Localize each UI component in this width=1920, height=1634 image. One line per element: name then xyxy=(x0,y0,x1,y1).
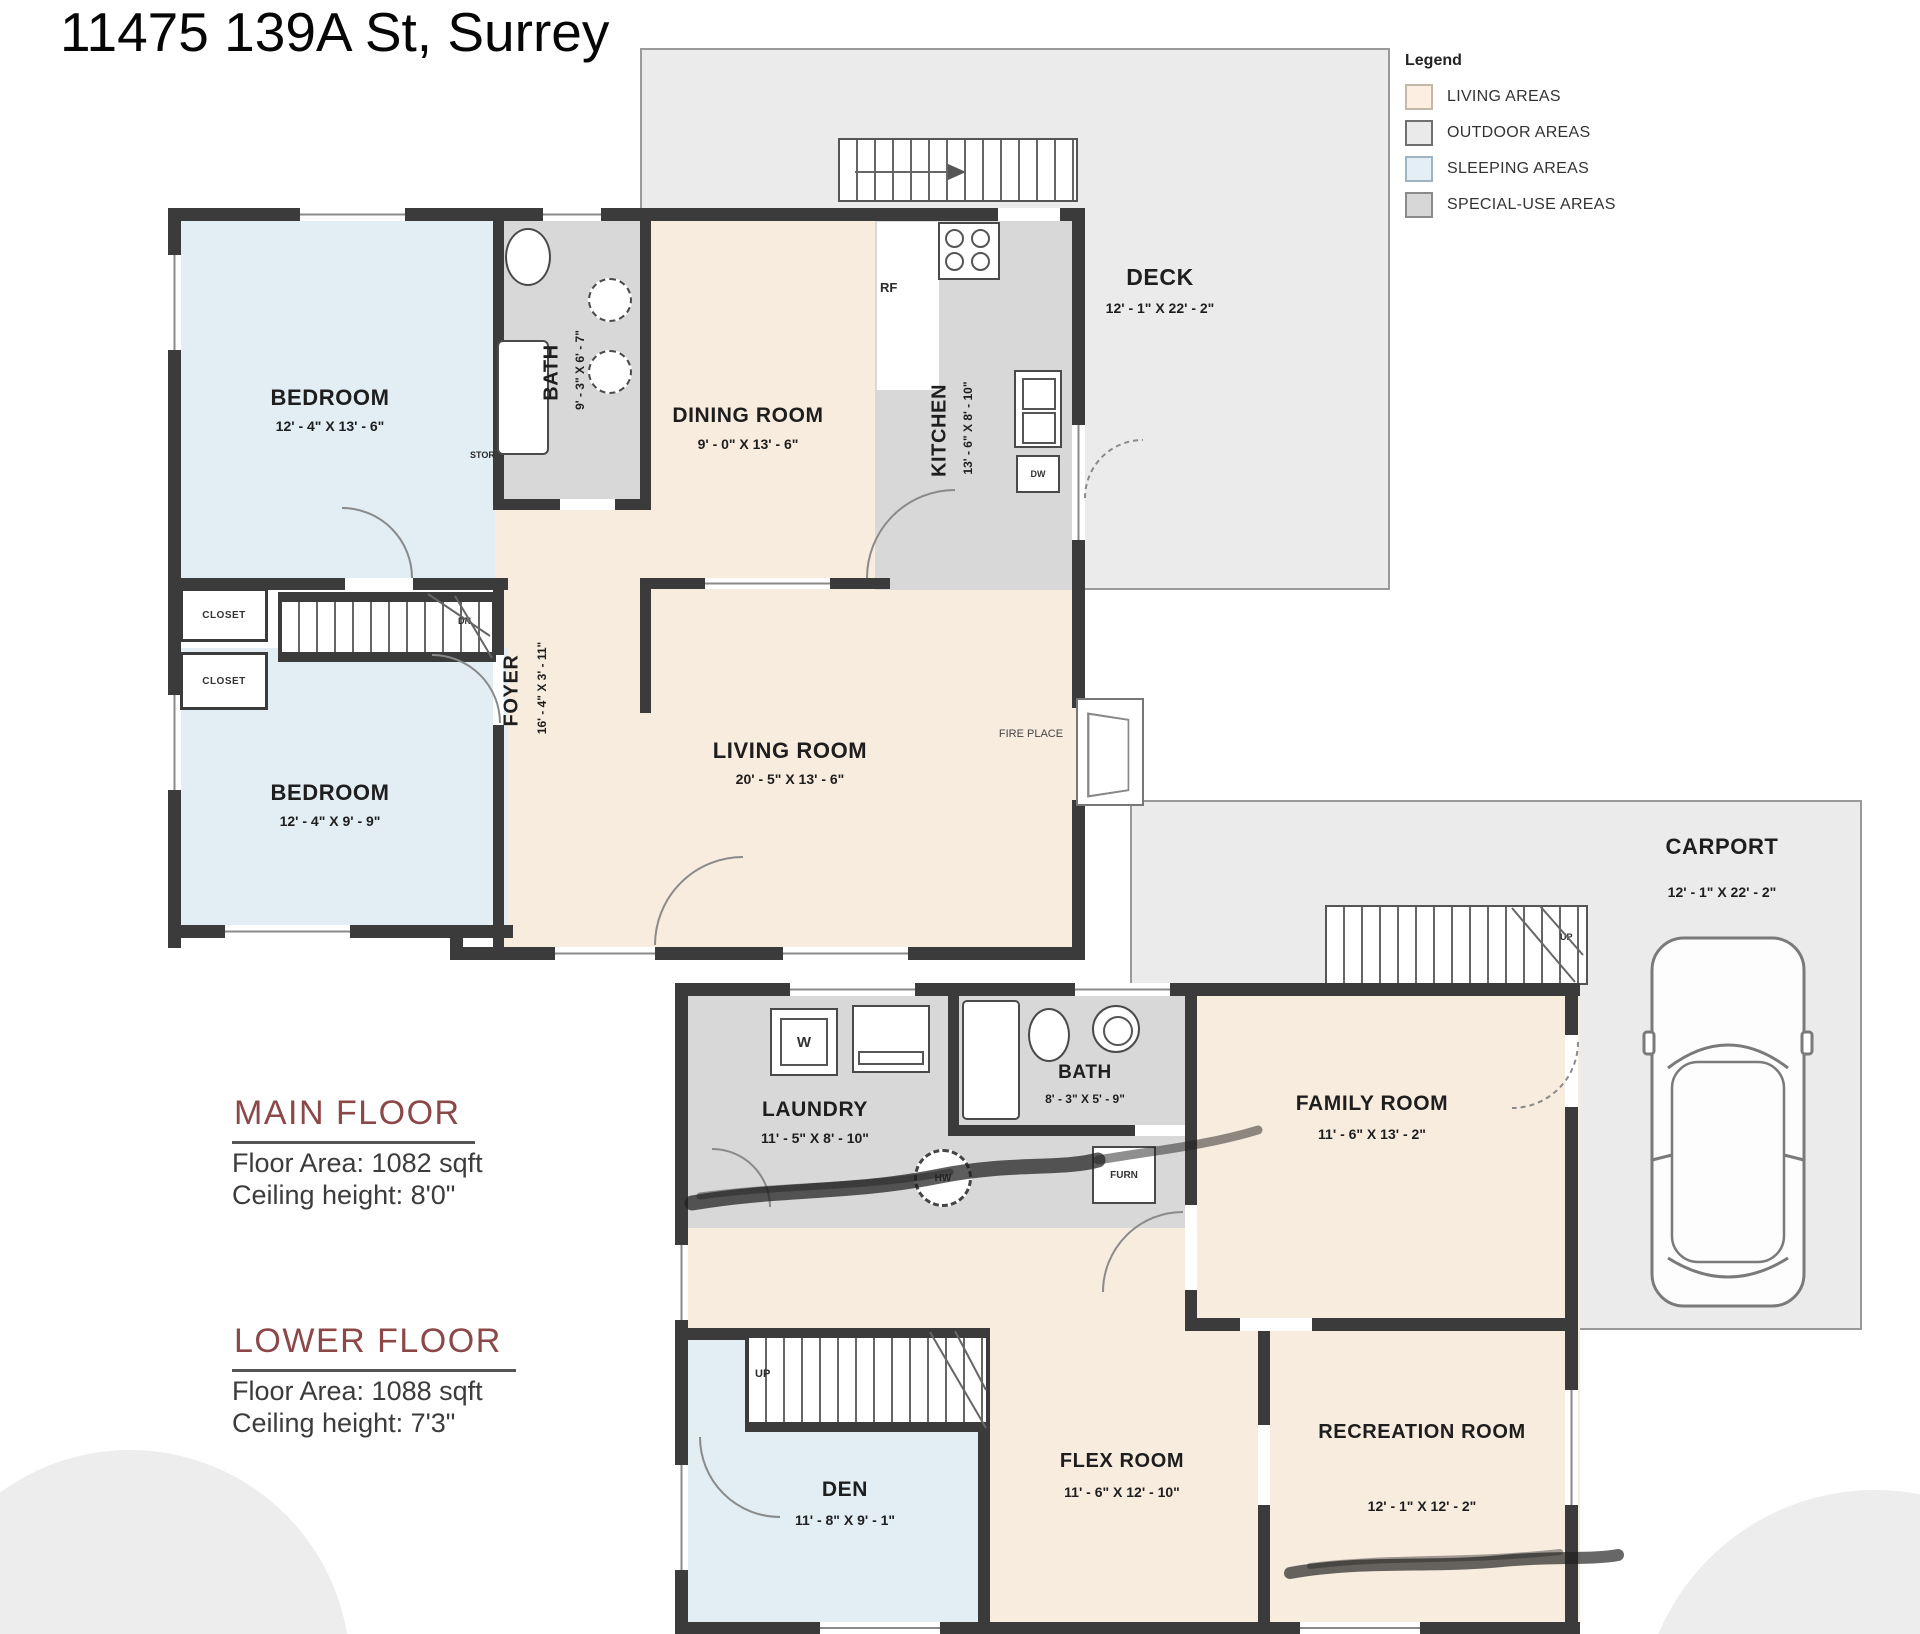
fireplace-icon xyxy=(1076,698,1144,806)
kitchen-dims: 13' - 6" X 8' - 10" xyxy=(961,328,975,528)
window xyxy=(225,925,350,938)
foyer-label: FOYER xyxy=(501,611,524,771)
legend-item-living: LIVING AREAS xyxy=(1405,84,1616,110)
storage-label: STOR xyxy=(470,450,495,460)
bath-main-label: BATH xyxy=(541,293,564,453)
wall xyxy=(675,1328,755,1340)
deck-stairs xyxy=(838,138,1078,202)
legend: Legend LIVING AREAS OUTDOOR AREAS SLEEPI… xyxy=(1405,52,1616,228)
door-gap xyxy=(345,578,413,590)
dining-area xyxy=(640,208,890,588)
dishwasher-icon: DW xyxy=(1016,455,1060,493)
bedroom-bottom-label: BEDROOM xyxy=(205,780,455,806)
window xyxy=(1075,983,1170,996)
window xyxy=(1565,1390,1578,1505)
stove-burners xyxy=(940,224,998,276)
wall xyxy=(675,1622,1580,1634)
decor-circle-left xyxy=(0,1450,350,1634)
family-room-label: FAMILY ROOM xyxy=(1247,1092,1497,1116)
door-gap xyxy=(1135,1125,1185,1136)
sleeping-areas-swatch xyxy=(1405,156,1433,182)
main-floor-ceiling: Ceiling height: 8'0" xyxy=(232,1180,455,1211)
window xyxy=(300,208,405,221)
furnace-label: FURN xyxy=(1094,1148,1154,1202)
closet-label: CLOSET xyxy=(183,655,265,707)
lower-floor-ceiling: Ceiling height: 7'3" xyxy=(232,1408,455,1439)
sink-icon xyxy=(588,278,632,322)
lower-toilet-icon xyxy=(1028,1008,1070,1062)
hot-water-label: HW xyxy=(917,1152,969,1204)
legend-item-label: LIVING AREAS xyxy=(1447,88,1561,106)
carport-stairs xyxy=(1325,905,1588,985)
sink-icon xyxy=(588,350,632,394)
toilet-icon xyxy=(505,228,551,286)
closet-bottom: CLOSET xyxy=(180,652,268,710)
lower-floor-area: Floor Area: 1088 sqft xyxy=(232,1376,483,1407)
window xyxy=(675,1465,688,1570)
decor-circle-right xyxy=(1640,1490,1920,1634)
stove-icon xyxy=(938,222,1000,280)
stairs-up-label: UP xyxy=(755,1368,770,1380)
legend-item-label: OUTDOOR AREAS xyxy=(1447,124,1590,142)
washer-icon: W xyxy=(770,1008,838,1076)
special-use-areas-swatch xyxy=(1405,192,1433,218)
window xyxy=(783,947,908,960)
bedroom-bottom-dims: 12' - 4" X 9' - 9" xyxy=(230,813,430,829)
kitchen-sink-icon xyxy=(1014,370,1062,448)
page-title: 11475 139A St, Surrey xyxy=(60,0,609,64)
wall xyxy=(1072,800,1085,960)
window xyxy=(555,947,655,960)
window xyxy=(1072,425,1085,540)
wall xyxy=(640,208,651,510)
window xyxy=(790,983,915,996)
kitchen-label: KITCHEN xyxy=(929,331,952,531)
legend-item-outdoor: OUTDOOR AREAS xyxy=(1405,120,1616,146)
fireplace-label: FIRE PLACE xyxy=(995,728,1067,741)
wall xyxy=(450,947,1085,960)
closet-top: CLOSET xyxy=(180,588,268,642)
dishwasher-label: DW xyxy=(1018,457,1058,491)
wall xyxy=(640,578,651,713)
lower-stairs xyxy=(745,1328,990,1432)
door-gap xyxy=(1258,1425,1270,1505)
window xyxy=(820,1622,940,1634)
living-label: LIVING ROOM xyxy=(665,738,915,764)
carport-label: CARPORT xyxy=(1622,834,1822,860)
window xyxy=(543,208,601,221)
door-gap xyxy=(998,208,1060,221)
family-room-dims: 11' - 6" X 13' - 2" xyxy=(1272,1126,1472,1142)
door-gap xyxy=(1565,1035,1578,1107)
lower-bath-label: BATH xyxy=(1010,1062,1160,1084)
legend-item-label: SPECIAL-USE AREAS xyxy=(1447,196,1616,214)
opening xyxy=(705,578,830,589)
foyer-dims: 16' - 4" X 3' - 11" xyxy=(535,608,549,768)
main-floor-heading: MAIN FLOOR xyxy=(232,1094,475,1144)
lower-floor-heading: LOWER FLOOR xyxy=(232,1322,516,1372)
window xyxy=(1300,1622,1420,1634)
bath-main-dims: 9' - 3" X 6' - 7" xyxy=(573,290,587,450)
stairs-dn-label: DN xyxy=(458,616,471,626)
main-floor-area: Floor Area: 1082 sqft xyxy=(232,1148,483,1179)
den-dims: 11' - 8" X 9' - 1" xyxy=(745,1512,945,1528)
window xyxy=(675,1245,688,1320)
laundry-tub-icon xyxy=(852,1005,930,1073)
living-dims: 20' - 5" X 13' - 6" xyxy=(690,771,890,787)
lower-sink-icon xyxy=(1092,1005,1140,1053)
living-areas-swatch xyxy=(1405,84,1433,110)
living-area xyxy=(640,578,1085,960)
legend-item-sleeping: SLEEPING AREAS xyxy=(1405,156,1616,182)
outdoor-areas-swatch xyxy=(1405,120,1433,146)
hot-water-tank-icon: HW xyxy=(914,1149,972,1207)
fridge-label: RF xyxy=(880,280,897,295)
door-gap xyxy=(1185,1205,1197,1290)
legend-item-label: SLEEPING AREAS xyxy=(1447,160,1589,178)
closet-label: CLOSET xyxy=(183,591,265,639)
main-stairs xyxy=(278,592,496,662)
deck-label: DECK xyxy=(1060,264,1260,291)
flex-room-dims: 11' - 6" X 12' - 10" xyxy=(1022,1484,1222,1500)
wall xyxy=(948,983,959,1136)
legend-item-special: SPECIAL-USE AREAS xyxy=(1405,192,1616,218)
bedroom-top-label: BEDROOM xyxy=(205,385,455,411)
floor-plan-page: 11475 139A St, Surrey Legend LIVING AREA… xyxy=(0,0,1920,1634)
laundry-dims: 11' - 5" X 8' - 10" xyxy=(715,1130,915,1146)
recreation-room-dims: 12' - 1" X 12' - 2" xyxy=(1322,1498,1522,1514)
recreation-room-label: RECREATION ROOM xyxy=(1302,1418,1542,1446)
door-gap xyxy=(560,499,615,510)
furnace-icon: FURN xyxy=(1092,1146,1156,1204)
carport-dims: 12' - 1" X 22' - 2" xyxy=(1622,884,1822,900)
stairs-up2-label: UP xyxy=(1560,932,1573,942)
deck-dims: 12' - 1" X 22' - 2" xyxy=(1060,300,1260,316)
den-label: DEN xyxy=(770,1478,920,1502)
lower-bath-dims: 8' - 3" X 5' - 9" xyxy=(1010,1092,1160,1106)
dining-label: DINING ROOM xyxy=(623,404,873,428)
legend-title: Legend xyxy=(1405,52,1616,70)
bedroom-top-dims: 12' - 4" X 13' - 6" xyxy=(230,418,430,434)
door-gap xyxy=(1240,1318,1312,1331)
laundry-label: LAUNDRY xyxy=(690,1098,940,1122)
flex-room-label: FLEX ROOM xyxy=(1022,1450,1222,1473)
window xyxy=(168,255,181,350)
dining-dims: 9' - 0" X 13' - 6" xyxy=(648,436,848,452)
